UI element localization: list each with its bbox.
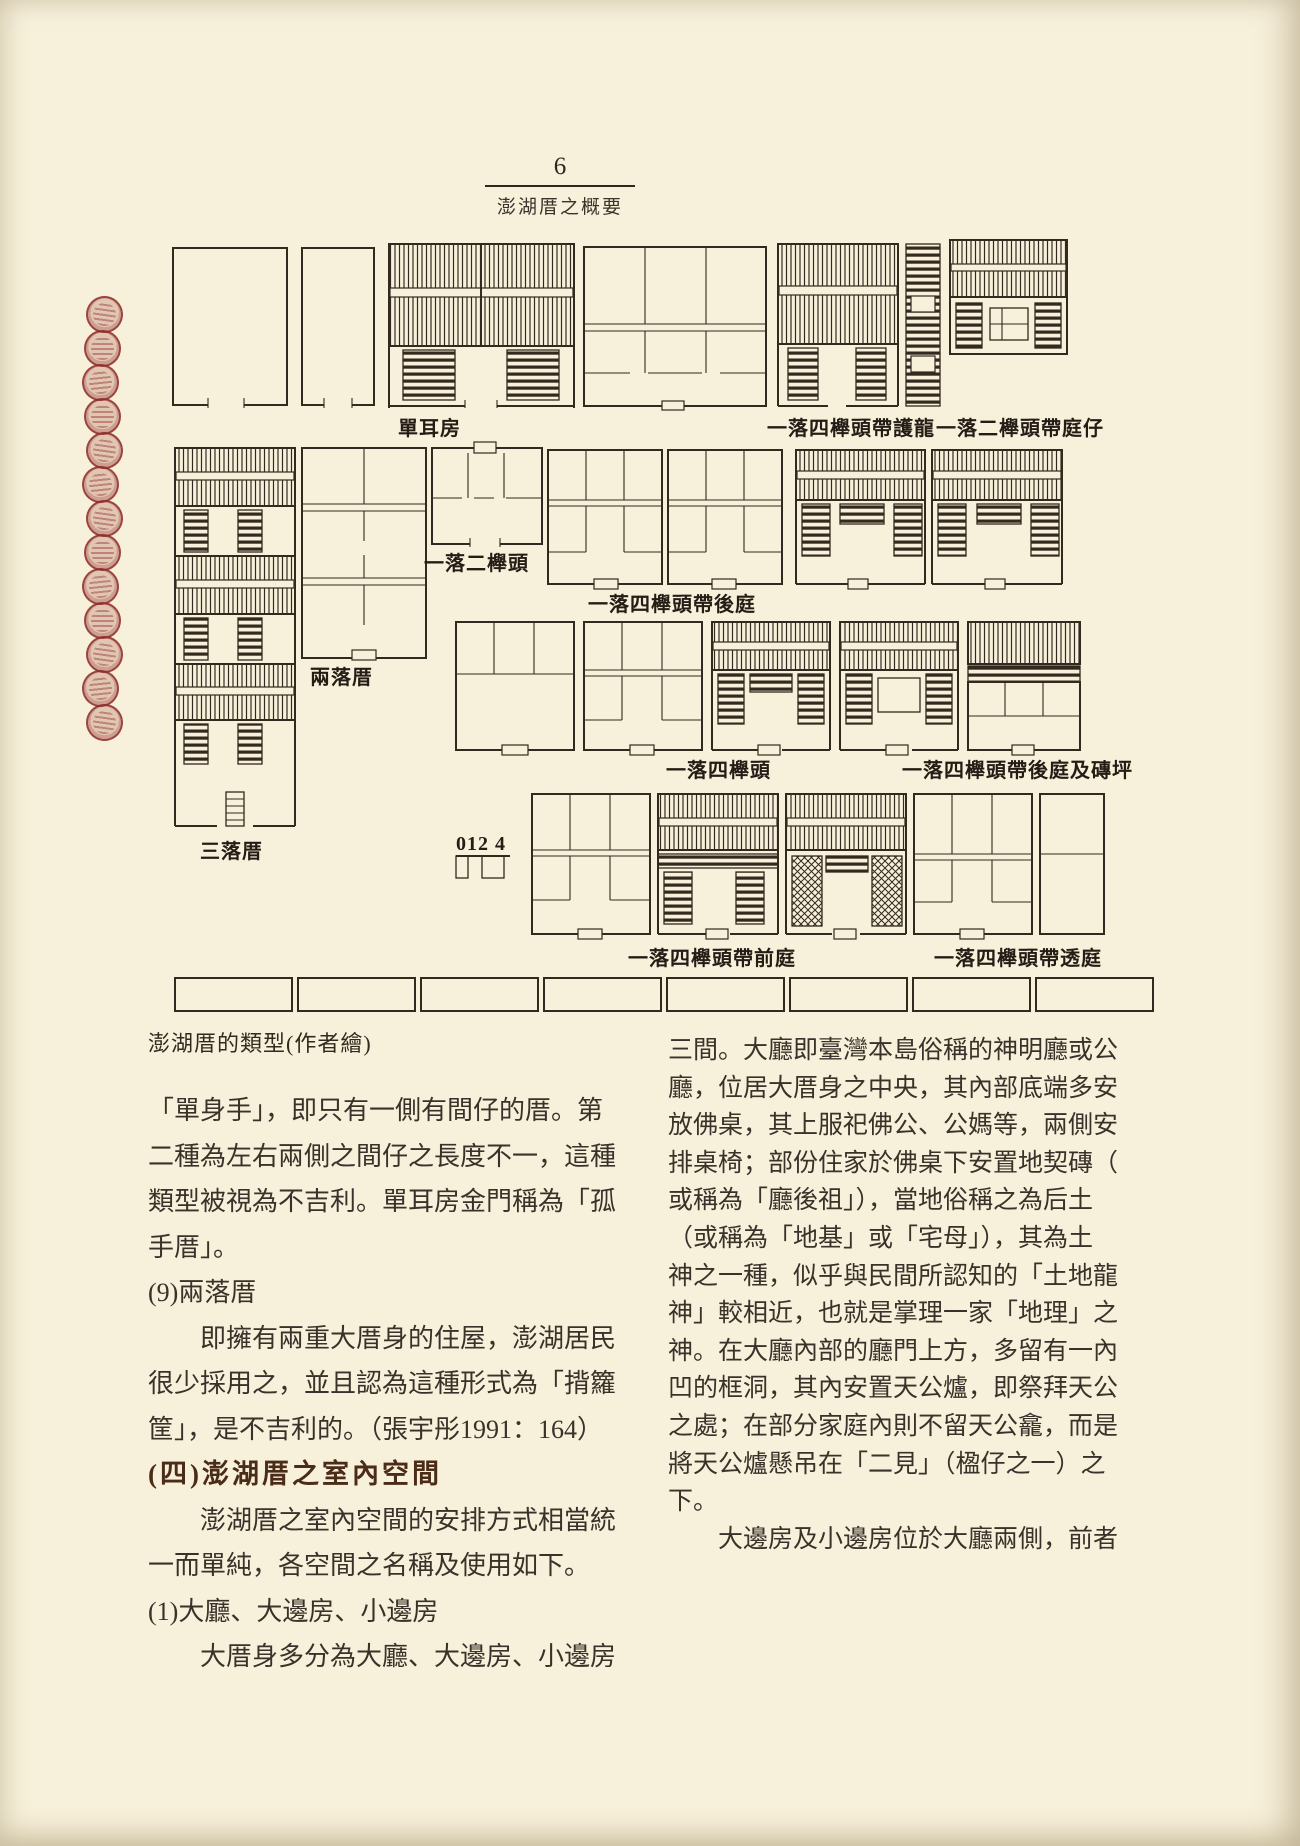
floor-plan [389, 244, 574, 408]
seal-stamp [80, 566, 121, 607]
text-line: 手厝」。 [148, 1225, 623, 1271]
text-line: 下。 [668, 1483, 1133, 1521]
text-line: 大厝身多分為大廳、大邊房、小邊房 [148, 1634, 623, 1680]
floor-plan [658, 794, 778, 939]
floor-plan [173, 248, 287, 410]
seal-stamp [80, 362, 121, 403]
scale-bar: 012 4 [456, 833, 510, 878]
text-line: 之處；在部分家庭內則不留天公龕，而是 [668, 1408, 1133, 1446]
text-line: 神之一種，似乎與民間所認知的「土地龍 [668, 1258, 1133, 1296]
page-number: 6 [485, 152, 635, 187]
plan-label: 一落二櫸頭 [424, 552, 529, 575]
text-line: 即擁有兩重大厝身的住屋，澎湖居民 [148, 1316, 623, 1362]
text-line: 澎湖厝之室內空間的安排方式相當統 [148, 1498, 623, 1544]
plan-label: 一落四櫸頭 [666, 759, 771, 782]
seal-stamp [84, 330, 121, 367]
floor-plan [302, 448, 426, 660]
scanned-page: 6 澎湖厝之概要 [0, 0, 1300, 1846]
floor-plan [1040, 794, 1104, 934]
floor-plan [175, 448, 295, 826]
floor-plan [302, 248, 374, 410]
plan-label: 一落四櫸頭帶前庭 [628, 946, 796, 970]
text-line: 凹的框洞，其內安置天公爐，即祭拜天公 [668, 1370, 1133, 1408]
floor-plan [778, 244, 940, 406]
text-line: 神」較相近，也就是掌理一家「地理」之 [668, 1295, 1133, 1333]
section-item-heading: (9)兩落厝 [148, 1270, 623, 1316]
right-text-column: 三間。大廳即臺灣本島俗稱的神明廳或公 廳，位居大厝身之中央，其內部底端多安 放佛… [668, 1032, 1133, 1558]
floor-plan [786, 794, 906, 939]
floor-plan [584, 247, 766, 410]
seal-stamp [84, 602, 121, 639]
floor-plan [532, 794, 650, 939]
text-line: 廳，位居大厝身之中央，其內部底端多安 [668, 1070, 1133, 1108]
page-header: 6 澎湖厝之概要 [455, 152, 665, 219]
floor-plan [456, 622, 574, 755]
floor-plan [914, 794, 1032, 939]
seal-stamp [84, 430, 126, 472]
floor-plan [584, 622, 702, 755]
text-line: 筐」，是不吉利的。（張宇彤1991：164） [148, 1407, 623, 1453]
floor-plan [932, 450, 1062, 589]
text-line: 神。在大廳內部的廳門上方，多留有一內 [668, 1333, 1133, 1371]
text-line: 很少採用之，並且認為這種形式為「揹籮 [148, 1361, 623, 1407]
figure-caption: 澎湖厝的類型(作者繪) [148, 1026, 372, 1058]
text-line: （或稱為「地基」或「宅母」），其為土 [668, 1220, 1133, 1258]
text-line: 「單身手」，即只有一側有間仔的厝。第 [148, 1088, 623, 1134]
running-title: 澎湖厝之概要 [455, 192, 665, 219]
seal-column [84, 296, 120, 741]
plan-label: 一落四櫸頭帶透庭 [934, 946, 1102, 970]
text-line: 大邊房及小邊房位於大廳兩側，前者 [668, 1521, 1133, 1559]
seal-stamp [84, 534, 121, 571]
plan-label: 一落四櫸頭帶後庭及磚坪 [902, 758, 1133, 782]
floor-plan-row [175, 978, 1153, 1011]
text-line: 放佛桌，其上服祀佛公、公媽等，兩側安 [668, 1107, 1133, 1145]
plan-label: 單耳房 [398, 416, 461, 440]
text-line: 三間。大廳即臺灣本島俗稱的神明廳或公 [668, 1032, 1133, 1070]
plan-label: 一落四櫸頭帶後庭 [588, 592, 756, 616]
plan-label: 一落四櫸頭帶護龍 [767, 416, 935, 440]
seal-stamp [80, 668, 121, 709]
plan-label: 三落厝 [200, 840, 263, 863]
text-line: 將天公爐懸吊在「二見」（楹仔之一）之 [668, 1446, 1133, 1484]
plan-label: 一落二櫸頭帶庭仔 [936, 416, 1104, 440]
floor-plan [668, 450, 782, 589]
text-line: 類型被視為不吉利。單耳房金門稱為「孤 [148, 1179, 623, 1225]
text-line: 或稱為「廳後祖」），當地俗稱之為后土 [668, 1182, 1133, 1220]
seal-stamp [84, 634, 126, 676]
floor-plan [432, 442, 542, 549]
floor-plans-drawing: 單耳房 一落四櫸頭帶護龍 一落二櫸頭帶庭仔 三落厝 [150, 238, 1165, 1013]
text-line: 一而單純，各空間之名稱及使用如下。 [148, 1543, 623, 1589]
floor-plan [712, 622, 830, 755]
floor-plan [840, 622, 958, 755]
floor-plan [950, 240, 1067, 354]
section-item-heading: (1)大廳、大邊房、小邊房 [148, 1589, 623, 1635]
left-text-column: 「單身手」，即只有一側有間仔的厝。第 二種為左右兩側之間仔之長度不一，這種 類型… [148, 1088, 623, 1680]
text-line: 排桌椅；部份住家於佛桌下安置地契磚（ [668, 1145, 1133, 1183]
scale-label: 012 4 [456, 833, 506, 855]
floor-plan [968, 622, 1080, 755]
floor-plan [796, 450, 925, 589]
seal-stamp [84, 398, 121, 435]
seal-stamp [80, 464, 121, 505]
plan-label: 兩落厝 [310, 666, 373, 689]
text-line: 二種為左右兩側之間仔之長度不一，這種 [148, 1134, 623, 1180]
section-heading: (四)澎湖厝之室內空間 [148, 1452, 623, 1498]
floor-plans-figure: 單耳房 一落四櫸頭帶護龍 一落二櫸頭帶庭仔 三落厝 [150, 238, 1165, 1013]
floor-plan [548, 450, 662, 589]
seal-stamp [84, 702, 126, 744]
